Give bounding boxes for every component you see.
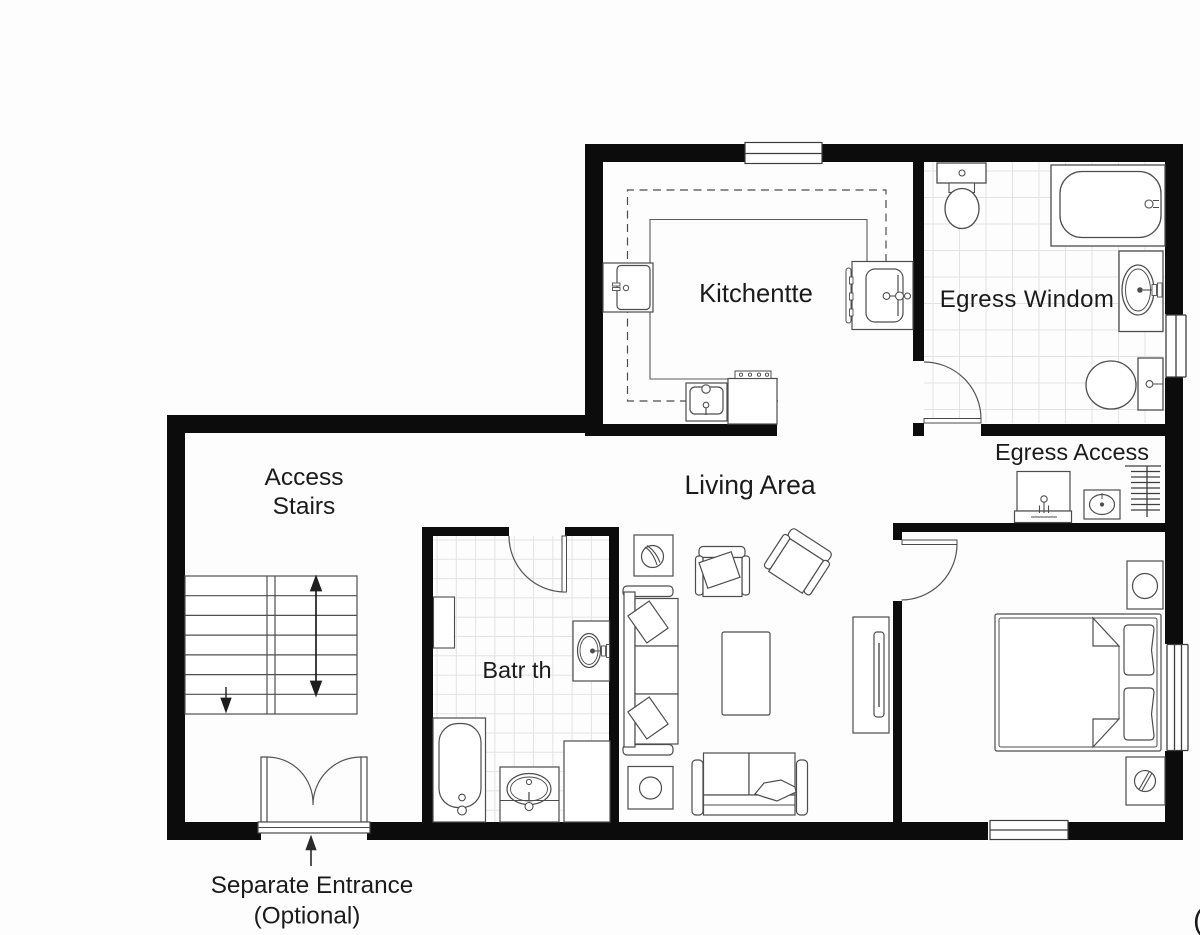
svg-text:Egress Access: Egress Access — [995, 439, 1149, 465]
svg-text:Stairs: Stairs — [273, 493, 336, 520]
svg-text:(Optional): (Optional) — [254, 903, 361, 930]
svg-text:Separate Entrance: Separate Entrance — [211, 872, 414, 899]
svg-text:Batr th: Batr th — [482, 657, 551, 683]
svg-text:Living Area: Living Area — [684, 470, 815, 500]
svg-text:Access: Access — [265, 464, 344, 491]
svg-text:Egress Windom: Egress Windom — [940, 286, 1115, 313]
svg-text:Kitchentte: Kitchentte — [699, 280, 813, 308]
svg-text:(: ( — [1193, 904, 1200, 935]
